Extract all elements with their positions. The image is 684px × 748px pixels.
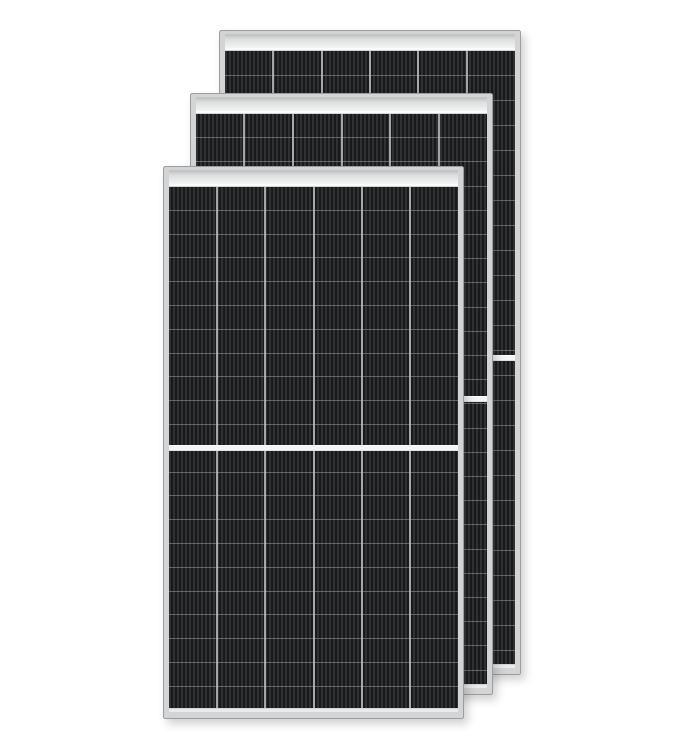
panel-top-rail bbox=[225, 34, 515, 50]
product-photo-canvas bbox=[0, 0, 684, 748]
panel-bottom-strip bbox=[169, 709, 458, 712]
solar-panel-front bbox=[163, 166, 464, 719]
panel-top-rail bbox=[196, 97, 487, 113]
panel-center-divider bbox=[169, 445, 458, 451]
solar-cell-grid bbox=[169, 187, 458, 708]
panel-top-rail bbox=[169, 170, 458, 186]
